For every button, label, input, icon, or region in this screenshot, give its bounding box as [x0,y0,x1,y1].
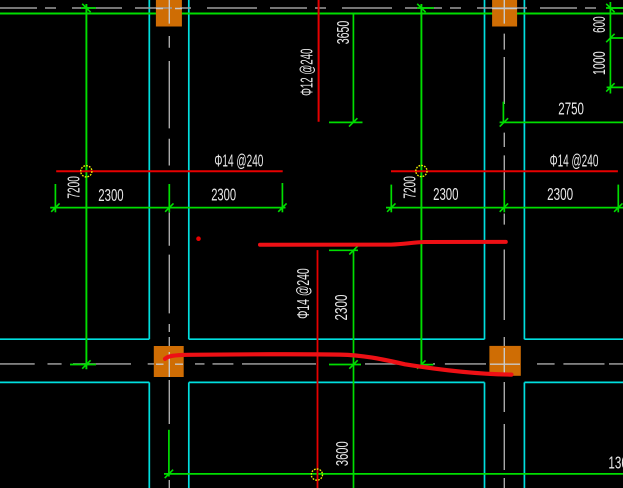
svg-text:2300: 2300 [331,294,351,320]
svg-text:2300: 2300 [98,185,123,205]
svg-text:3650: 3650 [333,21,353,45]
svg-text:600: 600 [589,16,609,33]
svg-text:7200: 7200 [400,176,420,199]
svg-text:Φ12 @240: Φ12 @240 [297,48,317,95]
svg-text:Φ14 @240: Φ14 @240 [550,151,599,171]
svg-text:2750: 2750 [558,99,584,119]
svg-text:7200: 7200 [64,176,84,199]
svg-text:Φ14 @240: Φ14 @240 [214,150,263,170]
svg-text:1360: 1360 [608,453,623,473]
svg-text:2300: 2300 [211,185,236,205]
svg-text:Φ14 @240: Φ14 @240 [293,268,313,319]
svg-text:3600: 3600 [332,441,352,466]
svg-text:2300: 2300 [547,184,573,204]
svg-text:1000: 1000 [589,51,609,75]
svg-text:2300: 2300 [433,184,459,204]
